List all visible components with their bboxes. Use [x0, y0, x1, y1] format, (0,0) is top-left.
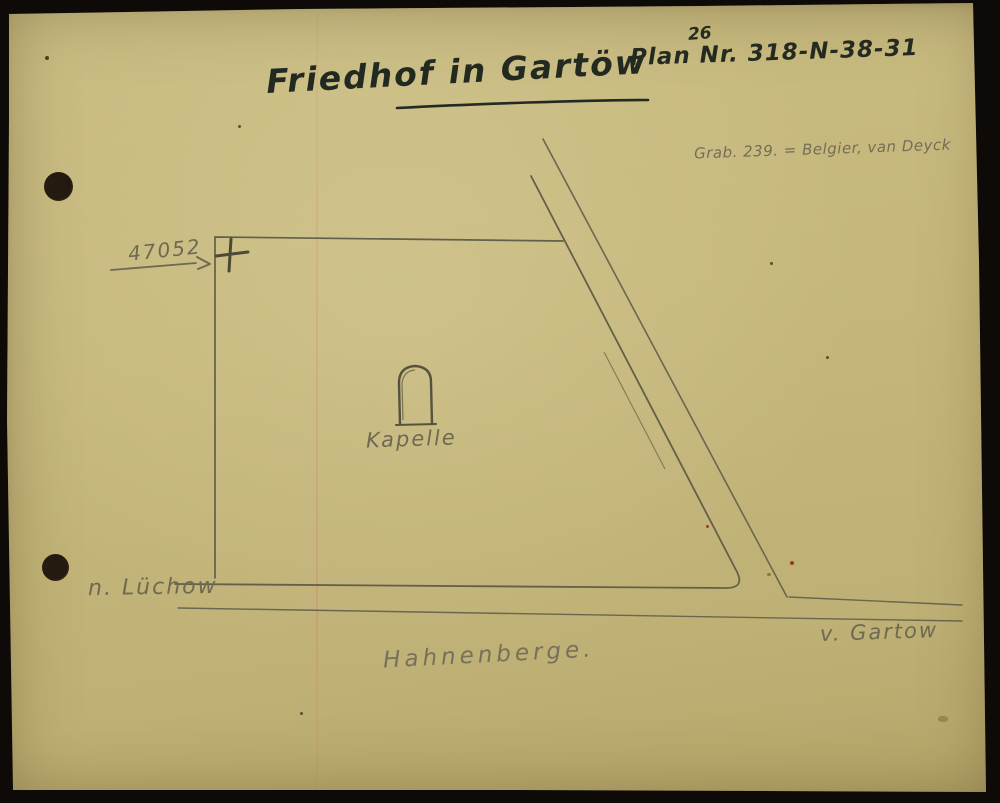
- paper-speck-yellow: [767, 573, 771, 576]
- paper-speck: [826, 356, 829, 359]
- scanned-document: Friedhof in Gartöw 26 Plan Nr. 318-N-38-…: [0, 0, 1000, 803]
- paper-speck: [300, 712, 303, 715]
- punch-hole-top: [44, 172, 73, 201]
- paper-speck: [45, 56, 49, 60]
- punch-hole-bottom: [42, 554, 69, 581]
- paper-sheet: [0, 0, 1000, 803]
- paper-speck: [238, 125, 241, 128]
- paper-speck-red: [706, 525, 709, 528]
- paper-smudge: [938, 716, 948, 722]
- paper-speck-red: [790, 561, 794, 565]
- scan-streak-line: [316, 14, 318, 790]
- paper-speck: [770, 262, 773, 265]
